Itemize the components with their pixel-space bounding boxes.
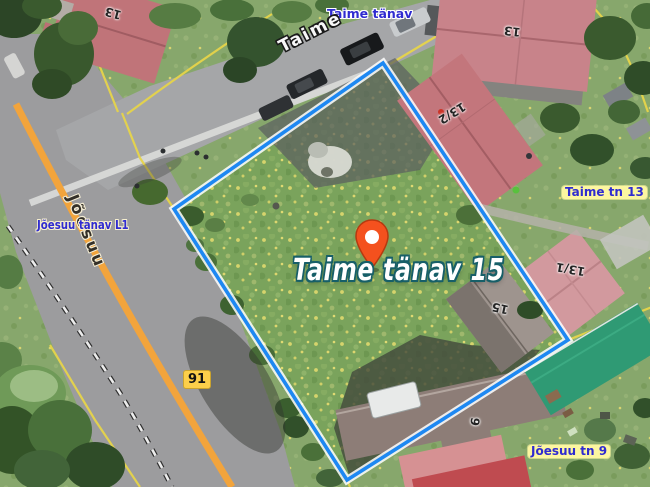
parcel-number-13-right: 13 <box>503 23 521 38</box>
road-number-badge: 91 <box>183 370 211 389</box>
address-label-joesuu-tn-9: Jõesuu tn 9 <box>528 445 610 458</box>
parcel-number-15: 15 <box>491 299 510 315</box>
parcel-label-joesuu-l1: Jõesuu tänav L1 <box>37 219 129 232</box>
satellite-map[interactable]: Taime tänav Taime Jõesuu Jõesuu tänav L1… <box>0 0 650 487</box>
highlighted-address-label: Taime tänav 15 <box>293 254 505 287</box>
address-label-taime-tn-13: Taime tn 13 <box>562 186 647 199</box>
parcel-number-13-left: 13 <box>104 4 124 21</box>
